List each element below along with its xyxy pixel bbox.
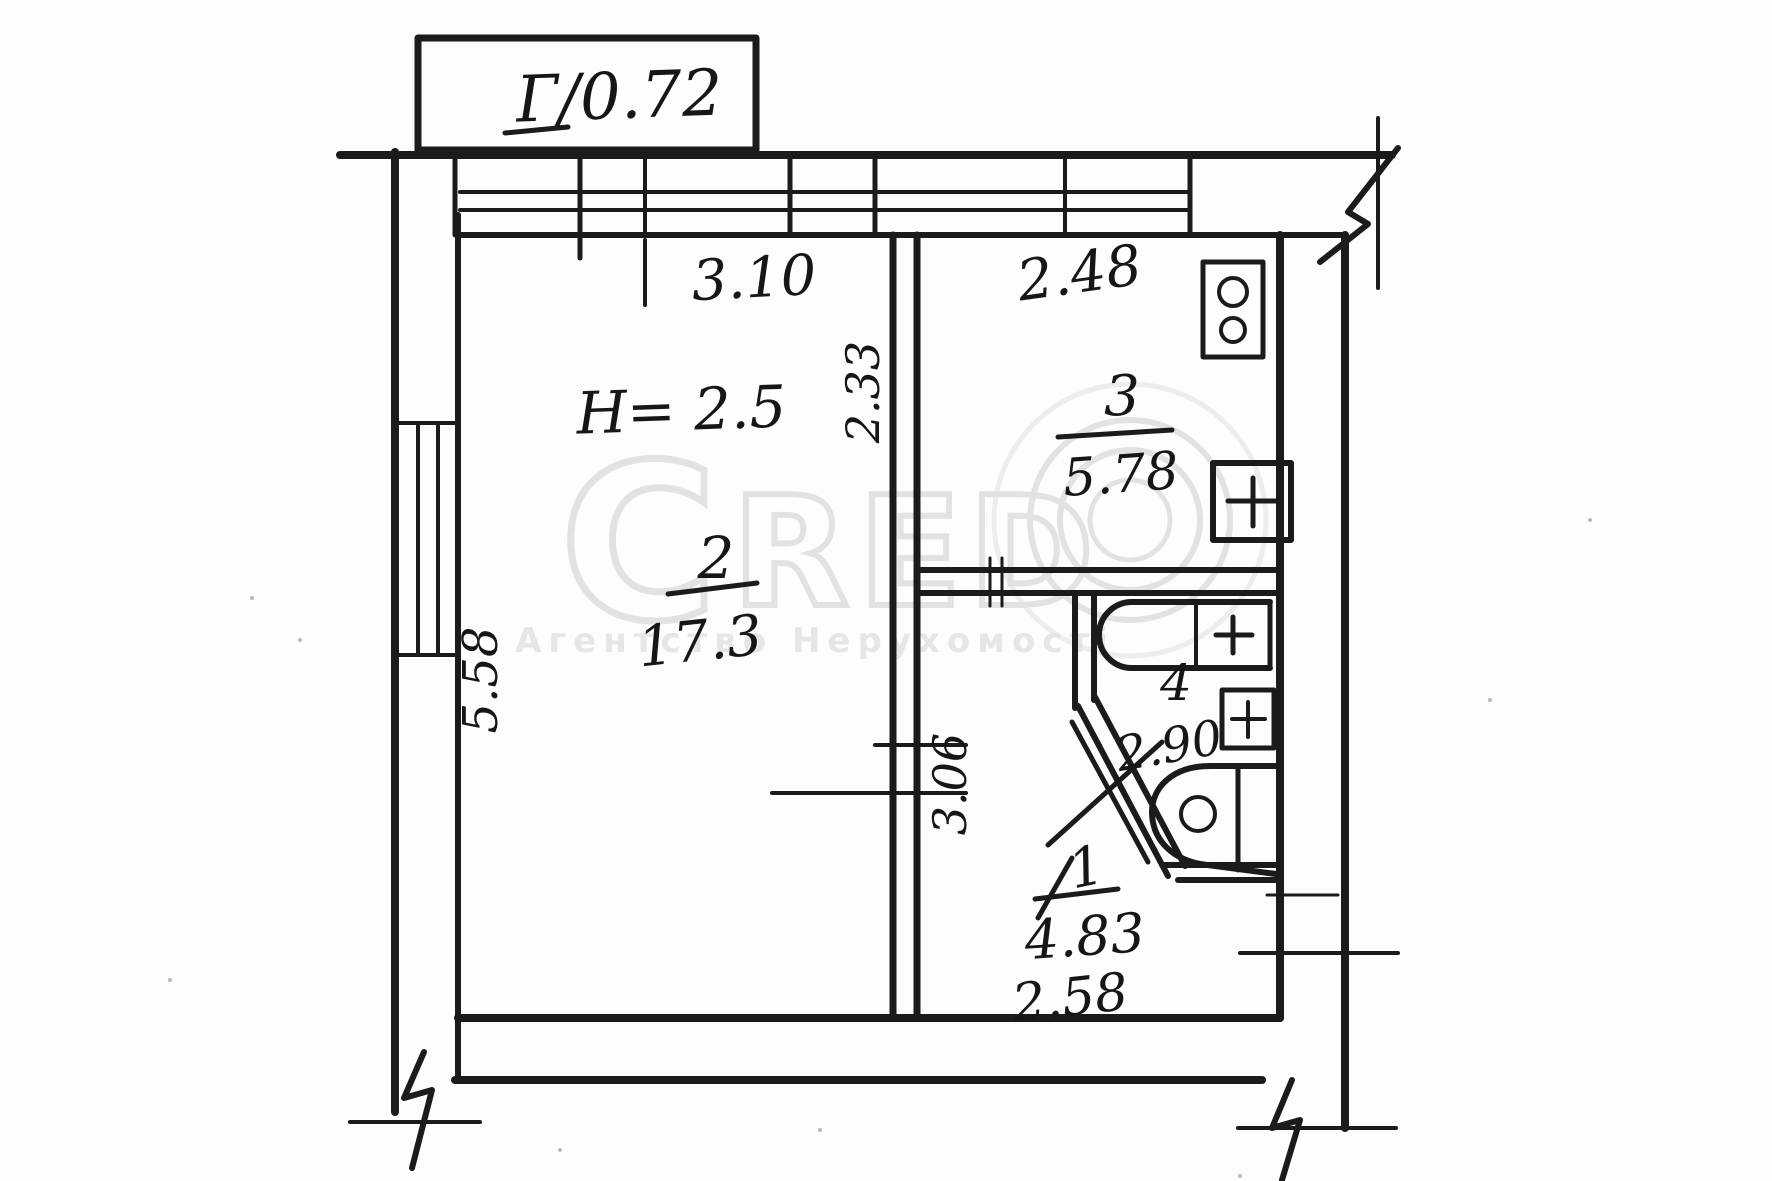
top-windows	[455, 155, 1190, 235]
room2-area: 17.3	[635, 603, 766, 681]
watermark-subtitle: Агентство Нерухомості	[515, 621, 1115, 661]
room4-number: 4	[1159, 654, 1192, 712]
washbasin-icon	[1222, 690, 1274, 748]
room1-area: 4.83	[1022, 901, 1147, 972]
room3-number: 3	[1104, 364, 1140, 429]
dim-living-width: 3.10	[690, 243, 818, 314]
dim-kitchen-width: 2.48	[1012, 233, 1146, 315]
dim-hall-depth: 3.06	[923, 733, 977, 835]
floor-plan-scan: C R E D Агентство Нерухомості	[0, 0, 1772, 1181]
left-window-strip	[395, 423, 458, 655]
watermark-letter-e: E	[858, 464, 962, 641]
room4-area: 2.90	[1111, 709, 1227, 783]
wall-break-bottom-left	[404, 1052, 432, 1168]
floor-plan-drawing: C R E D Агентство Нерухомості	[0, 0, 1772, 1181]
dim-hall-width: 2.58	[1009, 962, 1131, 1034]
room2-number: 2	[697, 524, 735, 592]
stove-icon	[1203, 262, 1263, 357]
dim-kitchen-depth: 2.33	[836, 341, 890, 444]
ceiling-height-note: H= 2.5	[574, 372, 787, 447]
room3-area: 5.78	[1061, 441, 1181, 509]
room3-underline	[1058, 430, 1172, 437]
balcony-label: Г/0.72	[514, 56, 724, 137]
toilet-icon	[1152, 766, 1276, 874]
wall-break-top-right	[1320, 148, 1398, 262]
balcony-callout: Г/0.72	[418, 38, 756, 258]
dim-living-depth: 5.58	[453, 627, 509, 734]
